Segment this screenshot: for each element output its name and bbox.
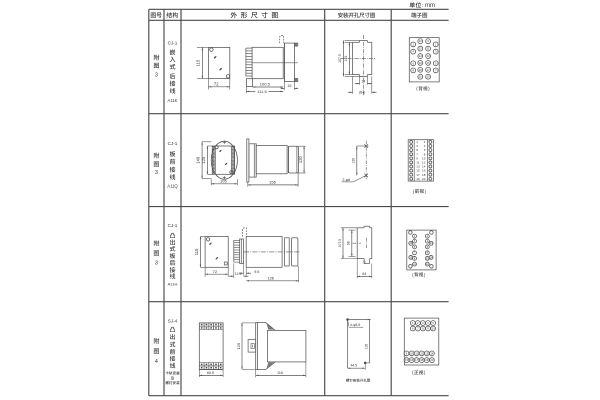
svg-text:14: 14 bbox=[419, 54, 422, 58]
svg-text:18: 18 bbox=[419, 68, 422, 72]
svg-text:126: 126 bbox=[267, 276, 274, 281]
svg-text:13: 13 bbox=[427, 54, 430, 58]
svg-text:115: 115 bbox=[194, 248, 199, 255]
svg-text:60.5: 60.5 bbox=[207, 371, 214, 375]
svg-text:14: 14 bbox=[362, 79, 366, 83]
svg-text:20: 20 bbox=[419, 75, 422, 79]
svg-text:107.5: 107.5 bbox=[338, 239, 342, 248]
svg-text:130: 130 bbox=[352, 158, 356, 164]
svg-text:149: 149 bbox=[196, 156, 201, 164]
svg-text:19: 19 bbox=[425, 358, 428, 362]
svg-text:11.5: 11.5 bbox=[235, 272, 242, 276]
svg-text:19: 19 bbox=[416, 177, 420, 181]
svg-text:10: 10 bbox=[432, 327, 435, 331]
svg-text:15: 15 bbox=[405, 358, 408, 362]
svg-text:98: 98 bbox=[347, 241, 351, 245]
svg-text:120: 120 bbox=[298, 155, 303, 163]
svg-text:15: 15 bbox=[427, 61, 430, 65]
svg-text:125: 125 bbox=[236, 342, 241, 349]
svg-text:20: 20 bbox=[363, 260, 367, 264]
svg-text:CJ-1: CJ-1 bbox=[168, 223, 178, 228]
svg-text:3: 3 bbox=[155, 261, 158, 267]
svg-text:10: 10 bbox=[410, 351, 413, 355]
svg-text:mm: mm bbox=[425, 3, 435, 9]
svg-text:13: 13 bbox=[425, 351, 428, 355]
svg-text:A11K: A11K bbox=[168, 98, 178, 103]
svg-text:10: 10 bbox=[419, 39, 422, 43]
svg-text:125: 125 bbox=[201, 156, 206, 164]
svg-text:CJ-1: CJ-1 bbox=[168, 40, 178, 45]
svg-text:20: 20 bbox=[430, 358, 433, 362]
svg-text:9.5: 9.5 bbox=[254, 270, 259, 274]
svg-text:17: 17 bbox=[427, 68, 430, 72]
svg-text:12: 12 bbox=[419, 47, 422, 51]
svg-text:3: 3 bbox=[155, 170, 158, 176]
svg-text:105: 105 bbox=[220, 179, 227, 184]
svg-text:A11H: A11H bbox=[168, 282, 178, 287]
svg-text:15: 15 bbox=[287, 84, 291, 88]
svg-text:SJ-4: SJ-4 bbox=[168, 318, 178, 323]
svg-text:12: 12 bbox=[420, 351, 423, 355]
svg-text:A11Q: A11Q bbox=[167, 184, 178, 189]
svg-text:4: 4 bbox=[155, 359, 158, 365]
svg-text:72: 72 bbox=[214, 82, 219, 87]
svg-text:156: 156 bbox=[269, 180, 276, 185]
svg-text:72: 72 bbox=[213, 269, 218, 274]
svg-text:20: 20 bbox=[422, 177, 426, 181]
svg-text:16: 16 bbox=[419, 61, 422, 65]
svg-text:130: 130 bbox=[365, 344, 369, 350]
svg-text:19: 19 bbox=[427, 75, 430, 79]
svg-text:CJ-1: CJ-1 bbox=[168, 141, 178, 146]
svg-text:116: 116 bbox=[277, 371, 283, 375]
svg-text:17: 17 bbox=[415, 358, 418, 362]
svg-text:3: 3 bbox=[155, 73, 158, 79]
svg-text:2-φ6: 2-φ6 bbox=[342, 178, 350, 182]
svg-text:(84): (84) bbox=[359, 91, 365, 95]
svg-text:100.5: 100.5 bbox=[260, 81, 271, 86]
svg-text:18: 18 bbox=[420, 358, 423, 362]
svg-text:111.5: 111.5 bbox=[257, 89, 267, 94]
svg-text:64: 64 bbox=[362, 272, 366, 276]
svg-text:φ5.5: φ5.5 bbox=[353, 323, 360, 327]
svg-text:14: 14 bbox=[430, 351, 433, 355]
svg-text:16: 16 bbox=[410, 358, 413, 362]
svg-text:44.5: 44.5 bbox=[351, 364, 358, 368]
svg-text:115: 115 bbox=[196, 59, 201, 66]
